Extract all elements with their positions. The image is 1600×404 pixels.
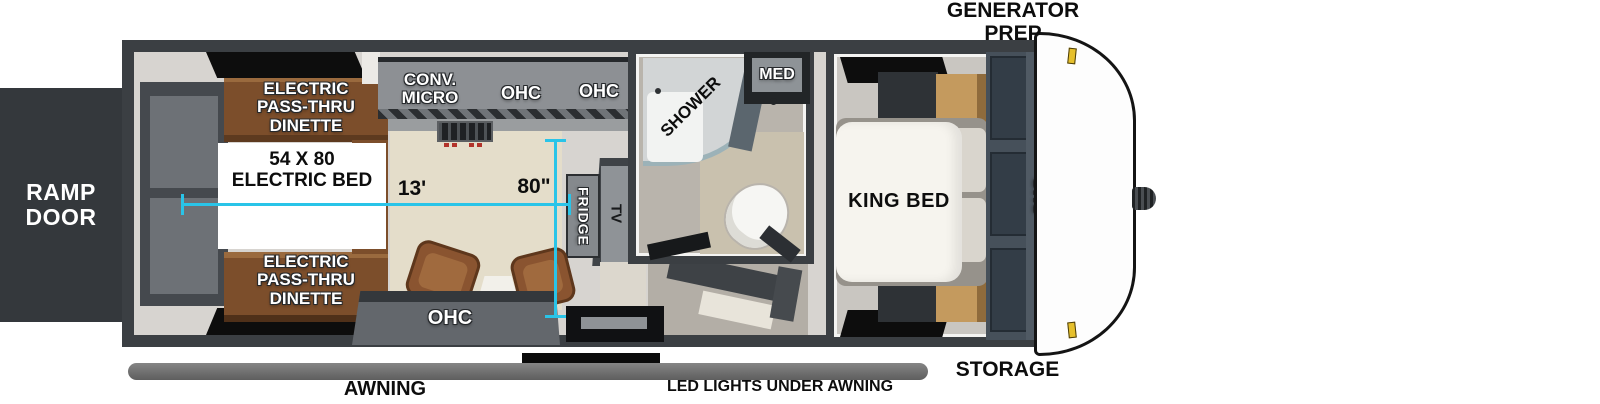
entry-door-step	[578, 314, 650, 332]
ohc-label: OHC	[497, 84, 545, 103]
stove-knob	[469, 143, 474, 147]
dimension-cap	[181, 194, 184, 215]
hitch-coupler	[1132, 187, 1156, 210]
shower-drain	[655, 88, 661, 94]
storage-label: STORAGE	[930, 359, 1085, 382]
front-cap	[1034, 32, 1136, 356]
cooktop	[437, 121, 493, 142]
led-lights-label: LED LIGHTS UNDER AWNING	[650, 378, 910, 395]
clearance-light	[1067, 48, 1077, 65]
king-bed-label: KING BED	[848, 191, 950, 213]
dimension-cap	[545, 139, 566, 142]
ohc-label: OHC	[575, 82, 623, 101]
cabinet-door	[990, 248, 1028, 332]
dimension-line-horizontal	[183, 203, 570, 206]
awning-label: AWNING	[310, 379, 460, 401]
roof-vent	[206, 52, 366, 78]
electric-bed-label: 54 X 80 ELECTRIC BED	[218, 150, 386, 191]
cabinet-edge	[378, 109, 640, 119]
electric-bed: 54 X 80 ELECTRIC BED	[218, 143, 386, 249]
conv-micro-label: CONV. MICRO	[388, 71, 472, 108]
tv: TV	[601, 166, 630, 262]
ramp-panel-window	[150, 198, 218, 294]
clearance-light	[1067, 322, 1077, 339]
king-bed: KING BED	[836, 122, 962, 282]
ramp-door-interior-panel	[140, 82, 228, 306]
bedroom-cabinet	[878, 72, 938, 118]
ramp-door-label: RAMP DOOR	[26, 180, 97, 230]
med-label: MED	[759, 66, 795, 83]
fridge-label: FRIDGE	[575, 187, 590, 246]
entry-door	[566, 306, 664, 342]
cabinet-door	[990, 152, 1028, 236]
dimension-80in-label: 80"	[506, 176, 562, 199]
dinette-top-label: ELECTRIC PASS-THRU DINETTE	[221, 80, 391, 135]
fridge: FRIDGE	[566, 174, 600, 258]
medicine-cabinet-face: MED	[752, 58, 802, 92]
cabinet-knob	[770, 98, 777, 105]
tv-label: TV	[607, 204, 623, 223]
stove-knob	[452, 143, 457, 147]
cabinet-door	[990, 56, 1028, 140]
generator-prep-label: GENERATOR PREP	[933, 0, 1093, 45]
ramp-door: RAMP DOOR	[0, 88, 122, 322]
ohc-label: OHC	[400, 308, 500, 330]
dimension-line-vertical	[554, 140, 557, 318]
lower-counter	[600, 262, 646, 306]
dimension-cap	[568, 194, 571, 215]
stove-knob	[444, 143, 449, 147]
kitchen-counter	[388, 119, 640, 131]
dimension-13ft-label: 13'	[386, 178, 438, 201]
dimension-cap	[545, 315, 566, 318]
ramp-panel-window	[150, 96, 218, 188]
rv-floorplan-diagram: RAMP DOOR 54 X 80 ELECTRIC BED ELECTRIC …	[0, 0, 1600, 404]
stove-knob	[477, 143, 482, 147]
